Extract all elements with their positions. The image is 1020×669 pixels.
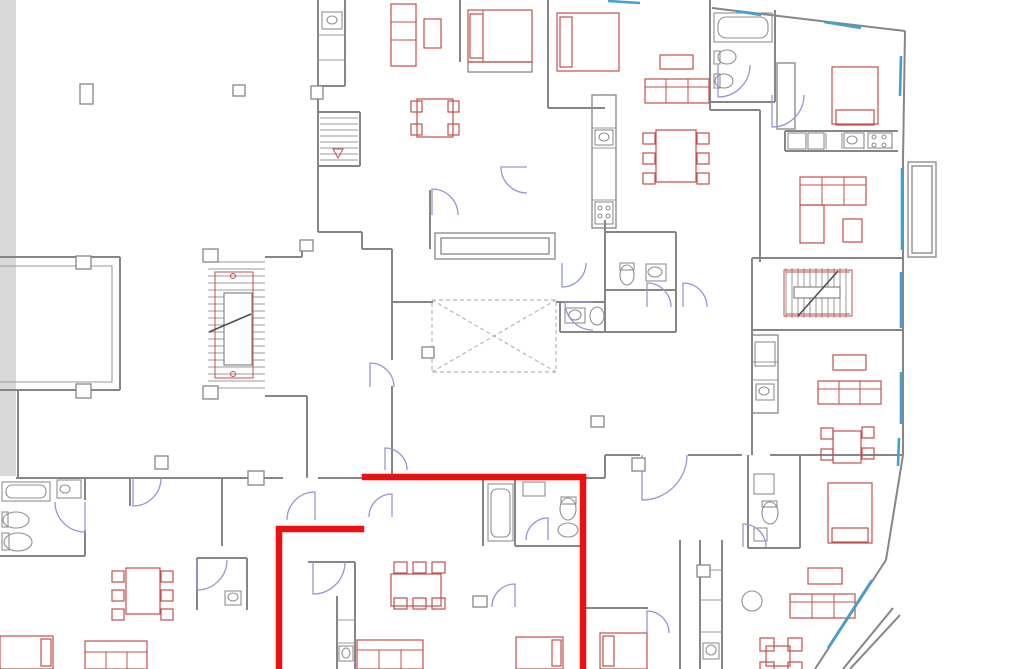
windows-layer	[608, 1, 902, 648]
walls-layer	[0, 0, 936, 669]
highlight-layer	[279, 477, 583, 669]
furniture-layer	[0, 4, 881, 669]
void-layer	[432, 300, 556, 372]
floorplan-svg	[0, 0, 1020, 669]
floorplan-canvas	[0, 0, 1020, 669]
left-strip-layer	[0, 0, 16, 476]
